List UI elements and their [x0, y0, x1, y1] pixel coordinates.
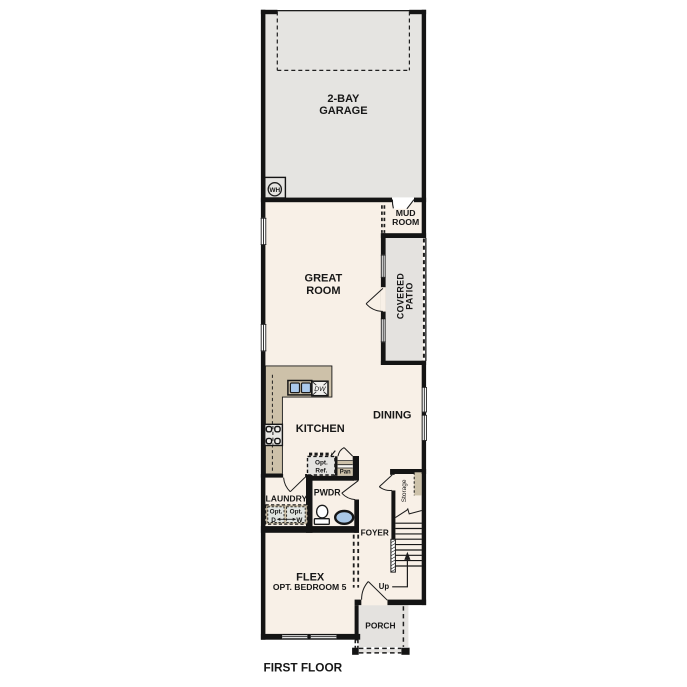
svg-text:Opt.: Opt. [315, 459, 328, 466]
svg-text:Ref.: Ref. [315, 467, 327, 474]
svg-text:D: D [271, 517, 276, 524]
svg-text:DINING: DINING [373, 410, 412, 422]
svg-text:OPT. BEDROOM 5: OPT. BEDROOM 5 [273, 582, 347, 592]
svg-text:GREAT: GREAT [305, 273, 343, 285]
svg-text:Opt.: Opt. [270, 509, 283, 516]
svg-text:LAUNDRY: LAUNDRY [266, 493, 308, 503]
svg-text:FOYER: FOYER [361, 529, 389, 538]
svg-text:FIRST FLOOR: FIRST FLOOR [264, 661, 343, 675]
svg-text:KITCHEN: KITCHEN [296, 423, 345, 435]
svg-text:Storage: Storage [401, 479, 408, 502]
svg-text:W: W [296, 517, 303, 524]
svg-text:PWDR: PWDR [314, 488, 342, 498]
svg-text:ROOM: ROOM [392, 217, 419, 227]
svg-text:DW: DW [314, 386, 326, 393]
svg-text:WH: WH [269, 187, 280, 194]
svg-text:2-BAY: 2-BAY [327, 93, 360, 105]
svg-text:Opt.: Opt. [290, 509, 303, 516]
svg-text:Up: Up [379, 582, 390, 591]
svg-text:GARAGE: GARAGE [319, 105, 367, 117]
svg-text:ROOM: ROOM [306, 285, 340, 297]
svg-text:Pan: Pan [340, 470, 351, 476]
svg-text:PORCH: PORCH [365, 620, 395, 630]
